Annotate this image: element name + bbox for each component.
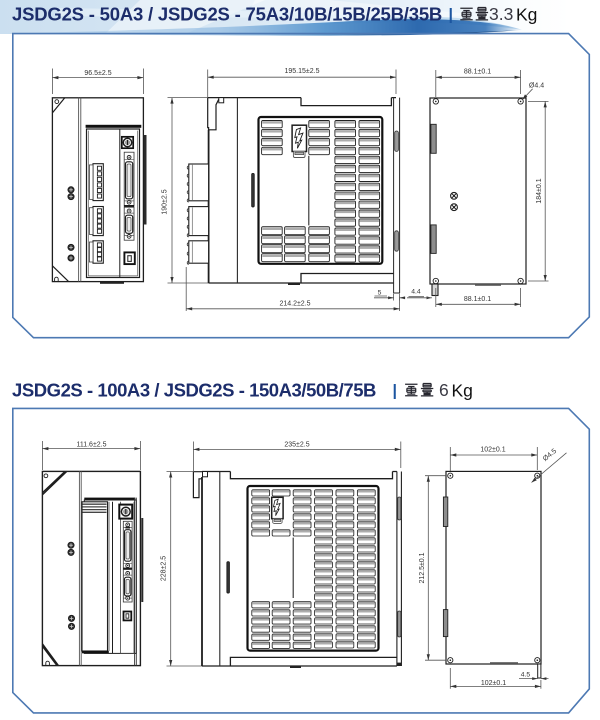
svg-text:Kg: Kg [516,5,537,25]
svg-text:190±2.5: 190±2.5 [162,189,169,214]
svg-text:111.6±2.5: 111.6±2.5 [76,441,106,448]
svg-text:6: 6 [439,380,449,400]
svg-text:4.5: 4.5 [521,672,531,679]
svg-text:195.15±2.5: 195.15±2.5 [285,68,320,75]
svg-text:4.4: 4.4 [411,288,421,295]
svg-text:212.5±0.1: 212.5±0.1 [419,552,426,583]
svg-text:Ø4.4: Ø4.4 [529,83,544,90]
svg-text:5: 5 [378,289,382,296]
svg-text:3.3: 3.3 [489,4,513,24]
svg-text:102±0.1: 102±0.1 [480,446,505,453]
svg-text:228±2.5: 228±2.5 [161,556,168,581]
svg-text:Kg: Kg [452,381,473,401]
svg-text:88.1±0.1: 88.1±0.1 [464,69,491,76]
svg-text:|: | [393,383,397,400]
svg-text:214.2±2.5: 214.2±2.5 [279,301,310,308]
svg-text:88.1±0.1: 88.1±0.1 [464,296,491,303]
svg-text:96.5±2.5: 96.5±2.5 [84,70,111,77]
svg-text:JSDG2S - 100A3 / JSDG2S - 150A: JSDG2S - 100A3 / JSDG2S - 150A3/50B/75B [12,380,376,401]
svg-text:Ø4.5: Ø4.5 [542,448,558,463]
svg-text:|: | [449,7,453,24]
svg-text:184±0.1: 184±0.1 [536,178,543,203]
svg-text:102±0.1: 102±0.1 [481,680,506,687]
svg-text:JSDG2S - 50A3 / JSDG2S - 75A3/: JSDG2S - 50A3 / JSDG2S - 75A3/10B/15B/25… [12,4,442,25]
svg-text:235±2.5: 235±2.5 [284,441,309,448]
